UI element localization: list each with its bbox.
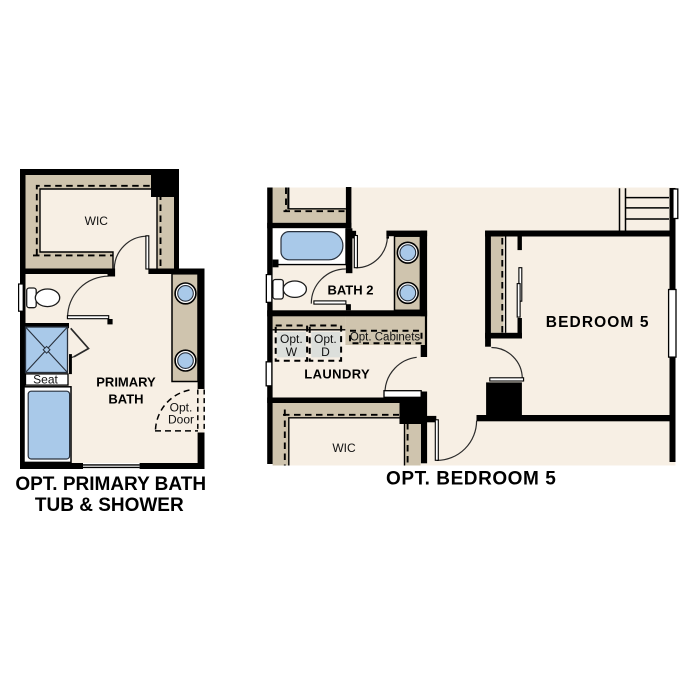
svg-text:OPT. PRIMARY BATH: OPT. PRIMARY BATH [15, 474, 206, 495]
svg-text:WIC: WIC [85, 214, 109, 228]
svg-text:Opt. Cabinets: Opt. Cabinets [350, 331, 421, 343]
svg-text:D: D [321, 345, 330, 359]
svg-text:TUB & SHOWER: TUB & SHOWER [35, 495, 184, 516]
svg-text:OPT. BEDROOM 5: OPT. BEDROOM 5 [386, 469, 556, 490]
svg-text:LAUNDRY: LAUNDRY [304, 366, 370, 381]
svg-text:WIC: WIC [332, 441, 356, 455]
svg-text:BEDROOM 5: BEDROOM 5 [546, 314, 650, 331]
svg-text:BATH 2: BATH 2 [328, 282, 374, 297]
svg-text:W: W [286, 345, 298, 359]
svg-text:Seat: Seat [33, 373, 58, 387]
svg-text:Door: Door [168, 412, 194, 426]
svg-text:BATH: BATH [108, 391, 143, 406]
svg-text:PRIMARY: PRIMARY [96, 374, 156, 389]
